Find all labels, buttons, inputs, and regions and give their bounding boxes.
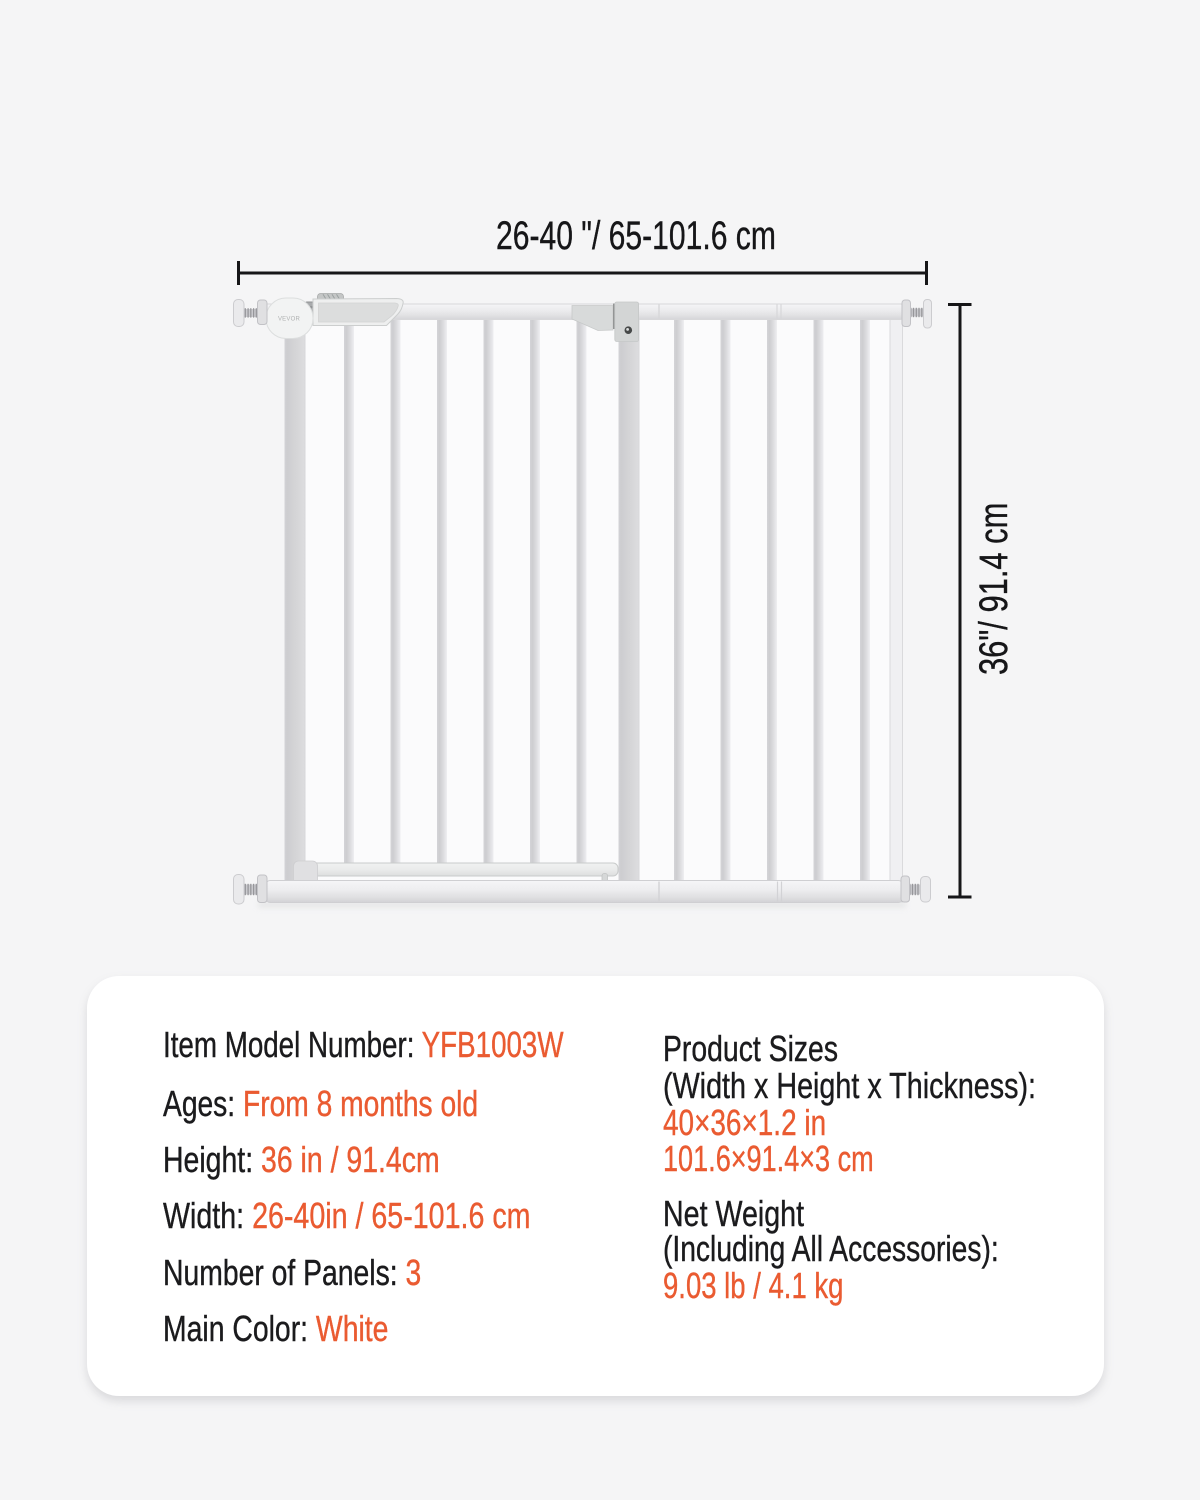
svg-text:VEVOR: VEVOR	[278, 317, 300, 323]
